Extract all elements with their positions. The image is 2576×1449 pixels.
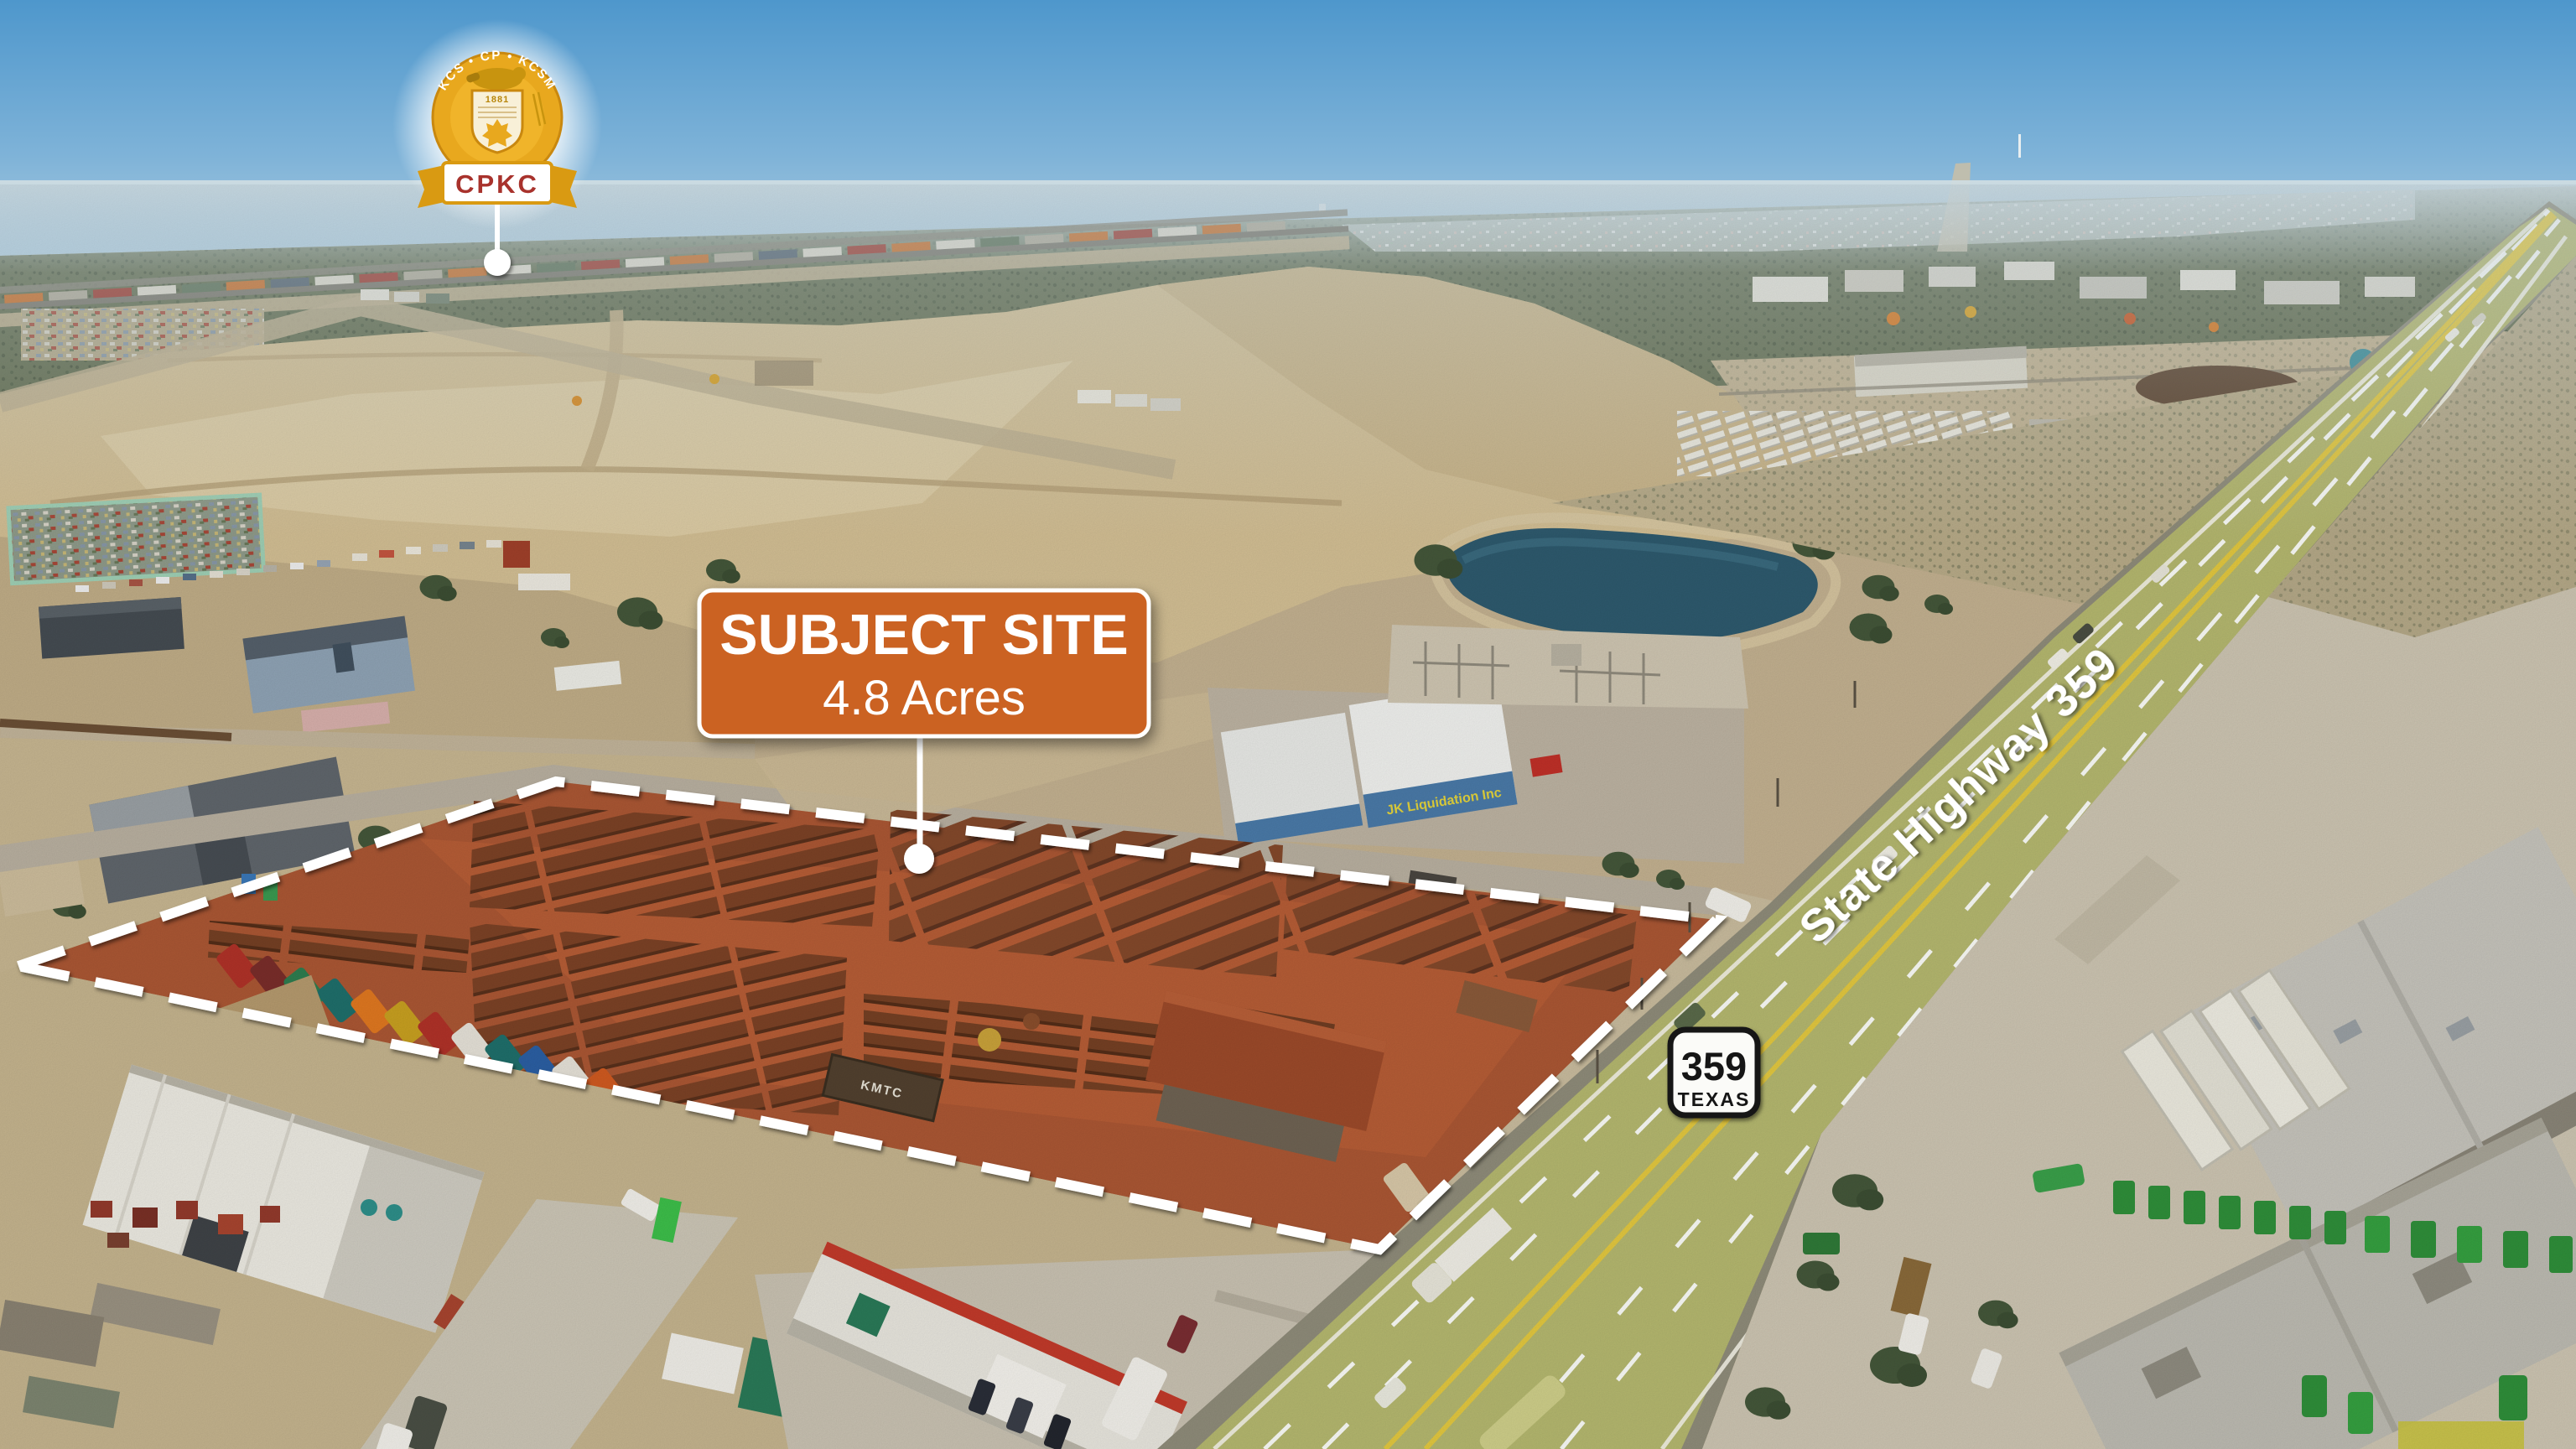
radio-tower <box>2018 134 2021 158</box>
site-label-title: SUBJECT SITE <box>719 603 1128 667</box>
site-label-subtitle: 4.8 Acres <box>823 671 1026 725</box>
banner-text: CPKC <box>455 169 539 199</box>
shield-number: 359 <box>1681 1044 1747 1088</box>
aerial-photo-stage: JK Liquidation Inc <box>0 0 2576 1449</box>
banner: CPKC <box>418 163 577 208</box>
leader-dot <box>904 844 934 874</box>
texas-359-shield: 359 TEXAS <box>1670 1030 1758 1115</box>
aerial-scene: JK Liquidation Inc <box>0 0 2576 1449</box>
atmosphere <box>0 184 2576 537</box>
marker-dot <box>484 249 511 276</box>
shield-year: 1881 <box>486 95 509 105</box>
shield-state: TEXAS <box>1678 1088 1751 1110</box>
